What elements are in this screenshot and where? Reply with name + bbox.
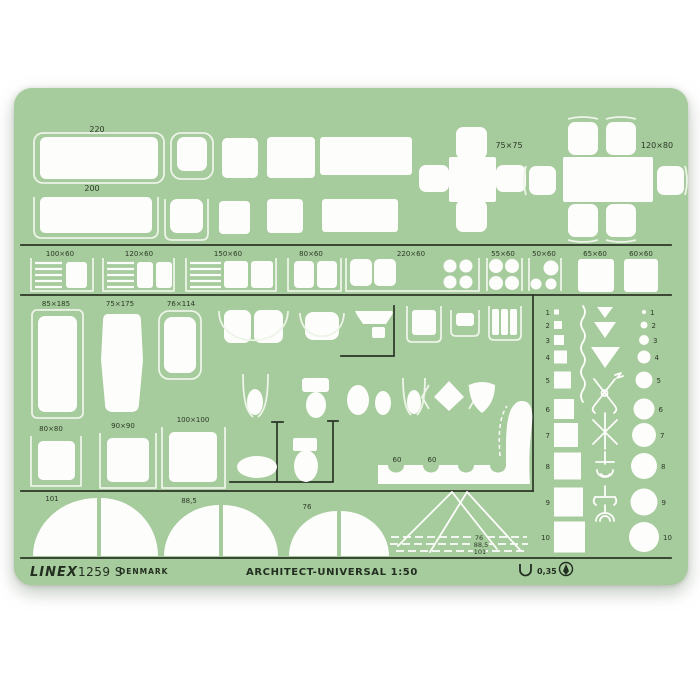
scale-circle-number: 3 xyxy=(653,337,657,345)
radiator-bar xyxy=(501,309,508,335)
scale-square-number: 1 xyxy=(546,309,550,317)
table-top xyxy=(563,157,653,202)
scale-circle-number: 1 xyxy=(650,309,654,317)
desk-chair-cutout xyxy=(66,262,87,288)
unit-cutout xyxy=(412,310,436,335)
cabinet-cutout xyxy=(222,138,258,178)
scale-square-number: 4 xyxy=(546,354,551,362)
shower-tray-cutout xyxy=(164,317,196,373)
chair xyxy=(419,165,449,192)
table-100-cutout xyxy=(169,432,217,482)
stall-toilet-bowl xyxy=(294,450,318,482)
scale-circle-cutout xyxy=(634,399,655,420)
dim-label-75x175: 75×175 xyxy=(106,300,134,308)
table-80-cutout xyxy=(38,441,75,480)
table-top xyxy=(449,157,496,202)
burner xyxy=(460,276,473,289)
dim-label-arc-76: 76 xyxy=(303,503,312,511)
chair-cutout xyxy=(294,261,314,288)
bathtub-85x185-cutout xyxy=(38,316,77,412)
burner xyxy=(489,259,503,273)
cabinet-small-cutout xyxy=(170,199,203,233)
burner xyxy=(505,259,519,273)
dim-label-100x60: 100×60 xyxy=(46,250,74,258)
desk-chair-cutout xyxy=(156,262,172,288)
toilet-tank-cutout xyxy=(302,378,329,392)
scale-circle-cutout xyxy=(638,351,651,364)
chair-cutout xyxy=(317,261,337,288)
cabinet-cutout xyxy=(267,199,303,233)
dim-label-60x60: 60×60 xyxy=(629,250,653,258)
chair xyxy=(606,204,636,237)
scale-square-cutout xyxy=(554,372,571,389)
scale-square-number: 3 xyxy=(546,337,550,345)
scale-circle-cutout xyxy=(631,453,657,479)
dim-label-90x90: 90×90 xyxy=(111,422,135,430)
appliance-cutout xyxy=(624,259,658,292)
oval-bowl-cutout xyxy=(347,385,369,415)
scale-square-cutout xyxy=(554,522,585,553)
scale-circle-cutout xyxy=(639,335,649,345)
dim-label-seat-60: 60 xyxy=(428,456,437,464)
cabinet-cutout xyxy=(219,201,250,234)
stall-washbasin-cutout xyxy=(237,456,277,478)
scale-square-cutout xyxy=(554,399,574,419)
unit-cutout xyxy=(456,313,474,326)
sink-basin-cutout xyxy=(350,259,372,286)
scale-square-number: 2 xyxy=(546,322,550,330)
scale-square-cutout xyxy=(554,488,583,517)
chair xyxy=(529,166,556,195)
desk-chair-cutout xyxy=(137,262,153,288)
scale-square-number: 5 xyxy=(546,377,550,385)
radiator-bar xyxy=(492,309,499,335)
scale-circle-cutout xyxy=(632,423,656,447)
scale-circle-number: 6 xyxy=(659,406,664,414)
table-90-cutout xyxy=(107,438,149,482)
scale-square-cutout xyxy=(554,321,562,329)
bidet-bowl-cutout xyxy=(407,390,421,414)
cabinet-cutout xyxy=(267,137,315,178)
scale-circle-number: 9 xyxy=(662,499,666,507)
chair xyxy=(606,122,636,155)
stall-toilet-tank xyxy=(293,438,317,451)
scale-square-cutout xyxy=(554,351,567,364)
dim-label-65x60: 65×60 xyxy=(583,250,607,258)
desk-chair-cutout xyxy=(251,261,273,288)
dim-label-80x60: 80×60 xyxy=(299,250,323,258)
stair-label-101: 101 xyxy=(474,548,486,556)
appliance-cutout xyxy=(578,259,614,292)
scale-circle-number: 7 xyxy=(660,432,664,440)
country-label: DENMARK xyxy=(119,567,169,576)
scale-circle-cutout xyxy=(636,372,653,389)
chair xyxy=(456,200,487,232)
product-photo: 220 75×75 120×80 200 xyxy=(0,0,700,700)
scale-circle-cutout xyxy=(642,310,646,314)
bathtub-75x175-cutout xyxy=(101,314,143,412)
cabinet-small-cutout xyxy=(177,137,207,171)
dim-label-100x100: 100×100 xyxy=(177,416,210,424)
dim-label-55x60: 55×60 xyxy=(491,250,515,258)
dim-label-120x80: 120×80 xyxy=(641,141,673,150)
scale-circle-cutout xyxy=(629,522,659,552)
dim-label-seat-60: 60 xyxy=(393,456,402,464)
dim-label-200: 200 xyxy=(84,184,99,193)
chair xyxy=(568,122,598,155)
burner xyxy=(444,276,457,289)
wardrobe-cutout xyxy=(322,199,398,232)
chair xyxy=(568,204,598,237)
dim-label-85x185: 85×185 xyxy=(42,300,70,308)
wardrobe-cutout xyxy=(320,137,412,175)
urinal-bowl-cutout xyxy=(247,389,263,415)
scale-square-cutout xyxy=(554,310,559,315)
scale-square-cutout xyxy=(554,453,581,480)
dim-label-arc-101: 101 xyxy=(45,495,58,503)
chair xyxy=(496,165,526,192)
desk-chair-cutout xyxy=(224,261,248,288)
burner xyxy=(505,276,519,290)
dim-label-75x75: 75×75 xyxy=(495,141,522,150)
stencil-drawing: 220 75×75 120×80 200 xyxy=(0,0,700,700)
dim-label-76x114: 76×114 xyxy=(167,300,196,308)
dim-label-220x60: 220×60 xyxy=(397,250,425,258)
chair xyxy=(657,166,684,195)
brand-name: LINEX xyxy=(30,565,78,580)
scale-circle-number: 8 xyxy=(661,463,665,471)
burner xyxy=(460,260,473,273)
burner xyxy=(544,261,559,276)
pen-width-value: 0,35 xyxy=(537,567,557,576)
dim-label-150x60: 150×60 xyxy=(214,250,242,258)
radiator-bar xyxy=(510,309,517,335)
dim-label-50x60: 50×60 xyxy=(532,250,556,258)
burner xyxy=(546,279,557,290)
scale-circle-number: 5 xyxy=(657,377,661,385)
chair xyxy=(456,127,487,159)
counter-corner-cutout xyxy=(506,401,532,484)
dim-label-80x80: 80×80 xyxy=(39,425,63,433)
model-number: 1259 S xyxy=(78,565,123,579)
scale-square-number: 7 xyxy=(546,432,550,440)
scale-circle-number: 4 xyxy=(655,354,660,362)
scale-square-cutout xyxy=(554,335,564,345)
scale-circle-number: 2 xyxy=(652,322,656,330)
sink-basin-cutout xyxy=(374,259,396,286)
product-title: ARCHITECT-UNIVERSAL 1:50 xyxy=(246,567,418,578)
scale-circle-number: 10 xyxy=(663,534,672,542)
burner xyxy=(489,276,503,290)
scale-square-number: 8 xyxy=(546,463,550,471)
scale-square-number: 10 xyxy=(541,534,550,542)
scale-square-number: 6 xyxy=(546,406,551,414)
scale-circle-cutout xyxy=(641,322,648,329)
bed-220-cutout xyxy=(40,137,158,179)
burner xyxy=(531,279,542,290)
scale-square-cutout xyxy=(554,423,578,447)
toilet-bowl-cutout xyxy=(306,392,326,418)
burner xyxy=(444,260,457,273)
oval-bowl-cutout xyxy=(375,391,391,415)
dim-label-arc-88: 88,5 xyxy=(181,497,197,505)
bed-200-cutout xyxy=(40,197,152,233)
dim-label-120x60: 120×60 xyxy=(125,250,153,258)
scale-square-number: 9 xyxy=(546,499,550,507)
scale-circle-cutout xyxy=(631,489,658,516)
shower-nozzle-cutout xyxy=(372,327,385,338)
